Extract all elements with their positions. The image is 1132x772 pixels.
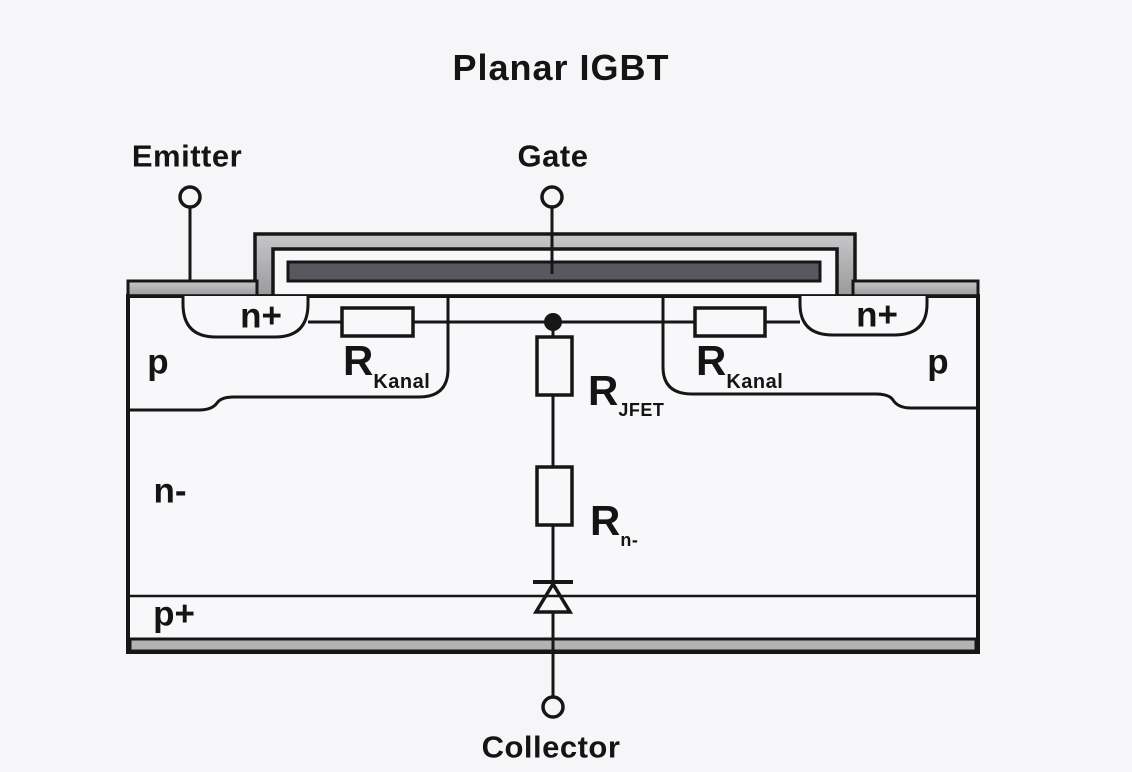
collector-terminal-circle [543,697,563,717]
r-n-drift-symbol: R [590,497,620,544]
p-plus-label: p+ [153,597,195,632]
collector-label: Collector [482,732,621,763]
jfet-resistor [537,337,572,395]
r-kanal-right-subscript: Kanal [726,371,783,393]
r-kanal-left-label: RKanal [343,340,430,392]
p-right-label: p [927,345,948,380]
gate-electrode [288,262,820,281]
emitter-label: Emitter [132,141,242,172]
planar-igbt-diagram: Planar IGBT Emitter Gate Collector n+ n+… [0,0,1132,772]
r-kanal-left-subscript: Kanal [373,371,430,393]
r-kanal-right-label: RKanal [696,340,783,392]
p-left-label: p [147,345,168,380]
r-jfet-label: RJFET [588,370,664,419]
channel-resistor-right [695,308,765,336]
r-n-drift-label: Rn- [590,500,638,549]
drift-resistor [537,467,572,525]
n-minus-label: n- [153,474,186,509]
r-kanal-left-symbol: R [343,337,373,384]
r-kanal-right-symbol: R [696,337,726,384]
gate-terminal-circle [542,187,562,207]
igbt-cross-section-drawing [0,0,1132,772]
n-plus-left-label: n+ [240,299,282,334]
gate-label: Gate [518,141,589,172]
channel-resistor-left [342,308,413,336]
r-jfet-subscript: JFET [618,400,664,420]
emitter-metal-left [128,281,257,296]
emitter-metal-right [853,281,978,296]
diagram-title: Planar IGBT [452,50,669,86]
circuit-node-dot [544,313,562,331]
r-n-drift-subscript: n- [620,530,638,550]
n-plus-right-label: n+ [856,298,898,333]
r-jfet-symbol: R [588,367,618,414]
emitter-terminal-circle [180,187,200,207]
